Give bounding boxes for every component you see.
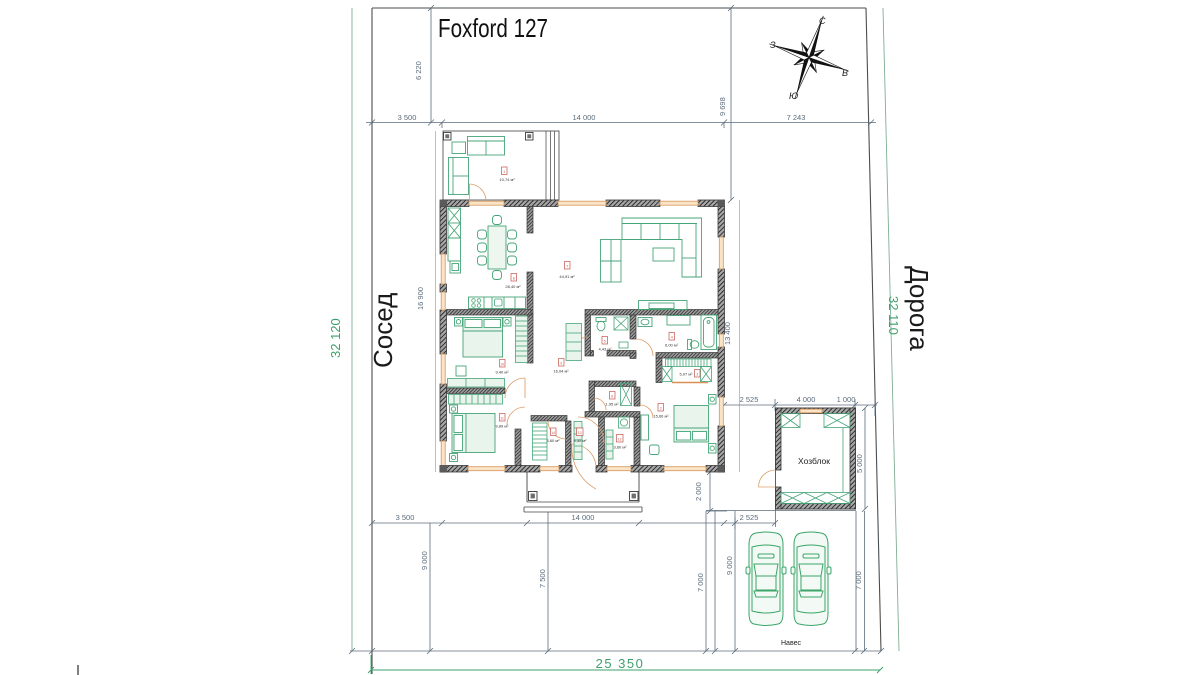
svg-text:16,04 м²: 16,04 м² [553, 369, 569, 374]
svg-text:З: З [770, 40, 776, 50]
svg-text:3,60 м²: 3,60 м² [547, 438, 561, 443]
svg-text:4,43 м²: 4,43 м² [599, 347, 613, 352]
svg-text:4 000: 4 000 [797, 395, 816, 404]
svg-text:В: В [842, 68, 848, 78]
svg-text:7 000: 7 000 [696, 573, 705, 592]
svg-text:Дорога: Дорога [904, 266, 934, 351]
svg-text:7 243: 7 243 [787, 113, 806, 122]
svg-text:15,66 м²: 15,66 м² [653, 414, 669, 419]
svg-text:8: 8 [513, 276, 515, 280]
svg-text:9,40 м²: 9,40 м² [496, 370, 510, 375]
svg-text:2: 2 [660, 406, 662, 410]
svg-text:9 698: 9 698 [718, 97, 727, 116]
svg-text:9 000: 9 000 [420, 551, 429, 570]
svg-text:32 120: 32 120 [328, 318, 343, 358]
svg-text:16 900: 16 900 [416, 287, 425, 310]
svg-text:5: 5 [604, 339, 606, 343]
svg-text:3,60 м²: 3,60 м² [614, 445, 628, 450]
svg-text:4,32 м²: 4,32 м² [574, 438, 588, 443]
svg-text:Хозблок: Хозблок [798, 456, 830, 466]
svg-text:25 350: 25 350 [596, 656, 645, 671]
svg-text:12: 12 [618, 437, 622, 441]
svg-text:44,91 м²: 44,91 м² [559, 274, 575, 279]
svg-text:5,07 м²: 5,07 м² [680, 372, 694, 377]
svg-text:9 000: 9 000 [725, 556, 734, 575]
svg-text:5 000: 5 000 [855, 454, 864, 473]
svg-text:14 000: 14 000 [572, 513, 595, 522]
svg-text:Навес: Навес [781, 640, 801, 647]
svg-text:9: 9 [560, 361, 562, 365]
svg-text:28,40 м²: 28,40 м² [505, 284, 521, 289]
svg-text:13: 13 [578, 431, 582, 435]
svg-text:Ю: Ю [789, 91, 798, 101]
svg-text:Сосед: Сосед [368, 293, 398, 368]
svg-text:4: 4 [671, 335, 673, 339]
svg-text:14: 14 [551, 431, 555, 435]
svg-text:2 525: 2 525 [740, 395, 759, 404]
svg-text:2 000: 2 000 [694, 482, 703, 501]
svg-text:9,89 м²: 9,89 м² [496, 424, 510, 429]
svg-text:2 525: 2 525 [740, 513, 759, 522]
svg-text:6,00 м²: 6,00 м² [665, 343, 679, 348]
svg-text:6 220: 6 220 [414, 61, 423, 80]
svg-text:10: 10 [500, 362, 504, 366]
svg-text:11: 11 [500, 416, 504, 420]
svg-text:10,74 м²: 10,74 м² [499, 177, 515, 182]
svg-text:6: 6 [611, 394, 613, 398]
svg-text:Foxford 127: Foxford 127 [438, 13, 548, 43]
svg-text:32 110: 32 110 [886, 296, 901, 335]
svg-text:3 500: 3 500 [398, 113, 417, 122]
svg-text:7: 7 [566, 264, 568, 268]
svg-text:1: 1 [503, 170, 505, 174]
svg-text:С: С [819, 16, 826, 26]
svg-text:3 500: 3 500 [396, 513, 415, 522]
svg-text:1 000: 1 000 [837, 395, 856, 404]
svg-text:7 000: 7 000 [854, 571, 863, 590]
svg-text:7 500: 7 500 [538, 569, 547, 588]
svg-text:3: 3 [696, 372, 698, 376]
svg-text:1,95 м²: 1,95 м² [606, 402, 620, 407]
svg-text:14 000: 14 000 [573, 113, 596, 122]
